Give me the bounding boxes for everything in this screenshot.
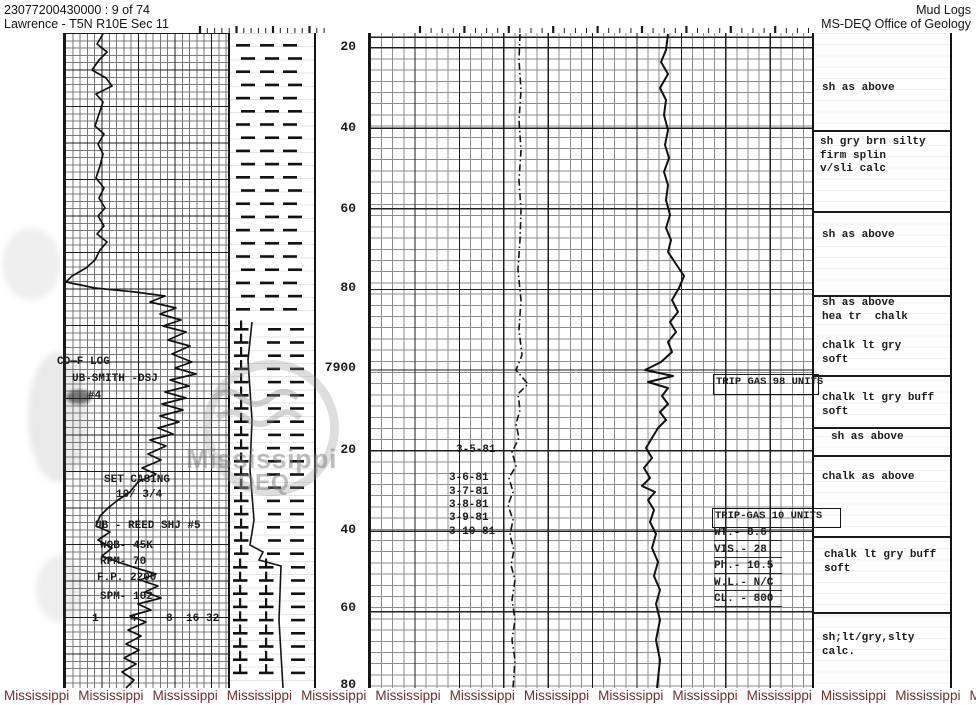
depth-label: 40: [314, 523, 356, 536]
lith-description: soft: [824, 563, 850, 576]
depth-label: 60: [314, 202, 356, 215]
org-name: MS-DEQ Office of Geology: [821, 17, 971, 31]
scale-tick-label: 16: [186, 613, 199, 626]
scan-smudge: [2, 228, 60, 300]
scan-smudge: [28, 352, 88, 482]
footer-watermark-word: Mississippi: [301, 688, 366, 705]
left-annotation: RPM- 70: [100, 556, 146, 569]
mud-data-line: VIS.- 28: [714, 544, 782, 558]
mud-data-line: Ph.- 10.5: [714, 560, 782, 574]
lith-description: firm splin: [820, 150, 886, 163]
well-location: Lawrence - T5N R10E Sec 11: [4, 17, 169, 31]
depth-label: 80: [314, 281, 356, 294]
lith-description: sh as above: [831, 431, 904, 444]
annotation-separator: [812, 375, 951, 377]
mud-data-line: W.L.- N/C: [714, 577, 782, 591]
left-annotation: CO—F LOG: [57, 356, 110, 369]
left-annotation: 10/ 3/4: [116, 489, 162, 502]
date-annotation: 3-5-81: [456, 444, 496, 457]
lith-description: chalk as above: [822, 471, 914, 484]
footer-watermark-word: Mississippi: [4, 688, 69, 705]
left-annotation: SPM- 102: [100, 591, 153, 604]
annotation-separator: [812, 130, 951, 132]
depth-label: 20: [314, 40, 356, 53]
annotation-separator: [812, 612, 951, 614]
depth-label: 40: [314, 121, 356, 134]
lith-description: soft: [822, 406, 848, 419]
left-annotation: F.P. 2200: [97, 572, 156, 585]
annotation-separator: [812, 455, 951, 457]
date-annotation: 3-6-81: [449, 472, 489, 485]
annotation-separator: [812, 211, 951, 213]
scale-tick-label: 32: [206, 613, 219, 626]
scale-tick-label: 4: [130, 613, 137, 626]
left-annotation: #4: [88, 390, 101, 403]
annotation-separator: [812, 536, 951, 538]
annotation-separator: [812, 295, 951, 297]
footer-watermark-word: Mississippi: [969, 688, 976, 705]
lith-description: sh as above: [822, 297, 895, 310]
depth-label: 7900: [314, 361, 356, 374]
stamp-text: DEQ: [238, 469, 289, 496]
date-annotation: 3-7-81: [449, 486, 489, 499]
lith-description: soft: [822, 354, 848, 367]
trip-gas-note: TRIP GAS 98 UNITS: [713, 374, 819, 395]
footer-watermark-word: Mississippi: [821, 688, 886, 705]
footer-watermark-word: Mississippi: [672, 688, 737, 705]
document-id: 23077200430000 : 9 of 74: [4, 3, 150, 17]
footer-watermark-word: Mississippi: [598, 688, 663, 705]
lith-description: sh as above: [822, 82, 895, 95]
watermark-row: MississippiMississippiMississippiMississ…: [0, 688, 976, 705]
date-annotation: 3-8-81: [449, 499, 489, 512]
scanned-mudlog-page: { "header": { "doc_id": "23077200430000 …: [0, 0, 976, 705]
trip-gas-note: TRIP-GAS 10 UNITS: [712, 508, 841, 528]
scale-tick-label: 8: [166, 613, 173, 626]
footer-watermark-word: Mississippi: [524, 688, 589, 705]
footer-watermark-word: Mississippi: [153, 688, 218, 705]
lith-description: sh as above: [822, 229, 895, 242]
date-annotation: 3-10-81: [449, 526, 495, 539]
footer-watermark-word: Mississippi: [227, 688, 292, 705]
depth-label: 60: [314, 601, 356, 614]
lith-description: chalk lt gry buff: [822, 392, 934, 405]
date-annotation: 3-9-81: [449, 512, 489, 525]
footer-watermark-word: Mississippi: [78, 688, 143, 705]
left-annotation: UB - REED SHJ #5: [95, 520, 201, 533]
lith-description: v/sli calc: [820, 163, 886, 176]
lith-description: calc.: [822, 646, 855, 659]
lith-description: hea tr chalk: [822, 311, 908, 324]
footer-watermark-word: Mississippi: [747, 688, 812, 705]
left-annotation: SET CASING: [104, 474, 170, 487]
footer-watermark-word: Mississippi: [895, 688, 960, 705]
depth-label: 20: [314, 443, 356, 456]
footer-watermark-word: Mississippi: [450, 688, 515, 705]
left-annotation: UB-SMITH -DSJ: [72, 373, 158, 386]
doc-category: Mud Logs: [916, 3, 971, 17]
left-annotation: WOB- 45K: [100, 540, 153, 553]
mud-data-line: CL. - 800: [714, 593, 782, 607]
lith-description: chalk lt gry: [822, 340, 901, 353]
lith-description: sh gry brn silty: [820, 136, 926, 149]
annotation-separator: [812, 427, 951, 429]
scale-tick-label: 1: [92, 613, 99, 626]
lith-description: sh;lt/gry,slty: [822, 632, 914, 645]
footer-watermark-word: Mississippi: [375, 688, 440, 705]
scan-smudge: [36, 556, 84, 622]
lith-description: chalk lt gry buff: [824, 549, 936, 562]
mud-data-line: WT.- 8.6: [714, 527, 782, 541]
